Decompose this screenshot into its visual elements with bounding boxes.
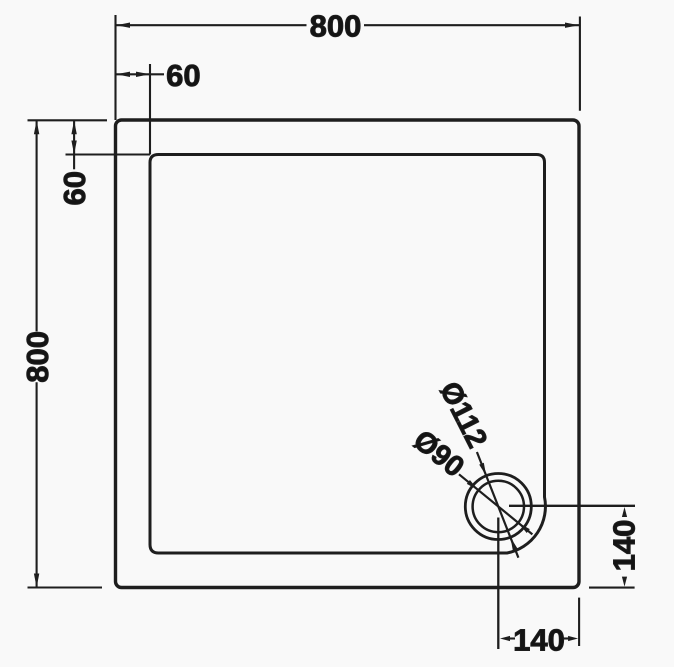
svg-text:800: 800 — [310, 9, 362, 44]
svg-text:60: 60 — [166, 58, 200, 93]
svg-text:140: 140 — [607, 520, 642, 572]
svg-text:60: 60 — [57, 171, 92, 205]
svg-text:140: 140 — [513, 622, 565, 657]
svg-text:800: 800 — [20, 331, 55, 383]
